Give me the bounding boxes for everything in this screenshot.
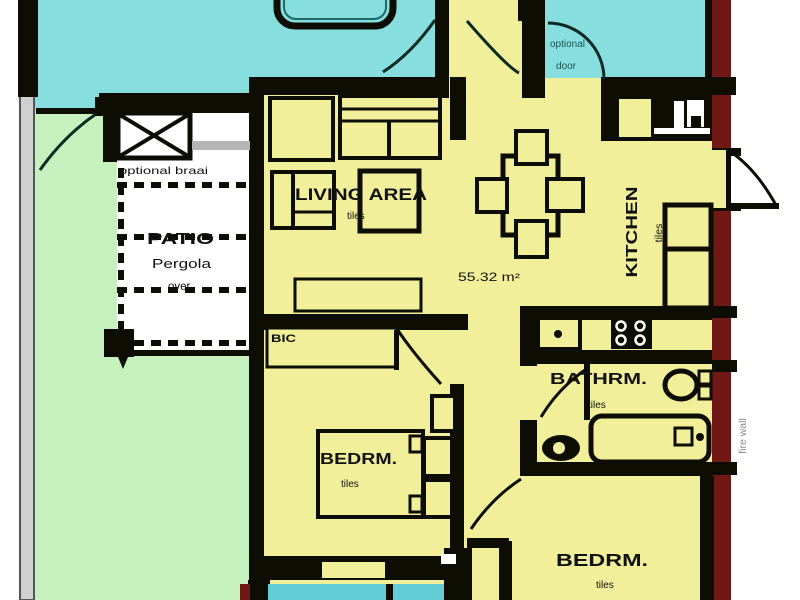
svg-text:BEDRM.: BEDRM.: [320, 451, 397, 468]
svg-text:Pergola: Pergola: [152, 256, 212, 271]
svg-text:LIVING AREA: LIVING AREA: [295, 186, 427, 204]
svg-text:KITCHEN: KITCHEN: [624, 187, 641, 278]
svg-text:door: door: [556, 61, 577, 72]
svg-text:optional: optional: [550, 39, 585, 50]
svg-text:fire wall: fire wall: [737, 418, 749, 454]
svg-text:PATIO: PATIO: [147, 231, 214, 248]
svg-text:55.32 m²: 55.32 m²: [458, 272, 520, 284]
svg-text:BIC: BIC: [271, 333, 296, 345]
svg-text:over: over: [168, 281, 191, 293]
svg-text:tiles: tiles: [341, 479, 359, 490]
svg-text:optional braai: optional braai: [119, 165, 208, 177]
svg-text:tiles: tiles: [653, 224, 665, 243]
svg-text:BEDRM.: BEDRM.: [556, 550, 648, 570]
svg-text:tiles: tiles: [596, 580, 614, 591]
svg-text:tiles: tiles: [347, 211, 365, 222]
svg-text:tiles: tiles: [588, 400, 606, 411]
